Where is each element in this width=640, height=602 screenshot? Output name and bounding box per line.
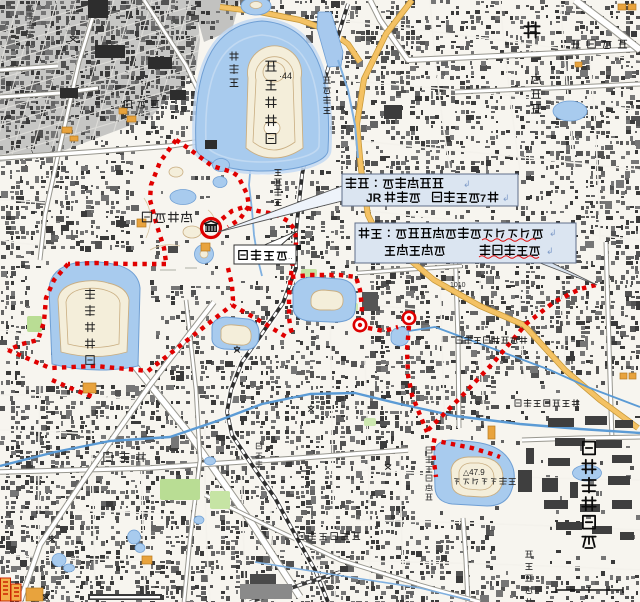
- svg-text:↲: ↲: [463, 179, 471, 189]
- svg-text:1010: 1010: [450, 282, 466, 289]
- svg-text:△47.9: △47.9: [463, 468, 485, 477]
- svg-text:JR: JR: [366, 191, 382, 205]
- svg-text:↲: ↲: [546, 246, 554, 256]
- svg-text:..: ..: [288, 252, 292, 261]
- svg-text:↲: ↲: [502, 193, 510, 203]
- svg-text:·44: ·44: [279, 71, 292, 81]
- svg-text:↲: ↲: [549, 228, 557, 238]
- svg-text:7: 7: [480, 193, 486, 205]
